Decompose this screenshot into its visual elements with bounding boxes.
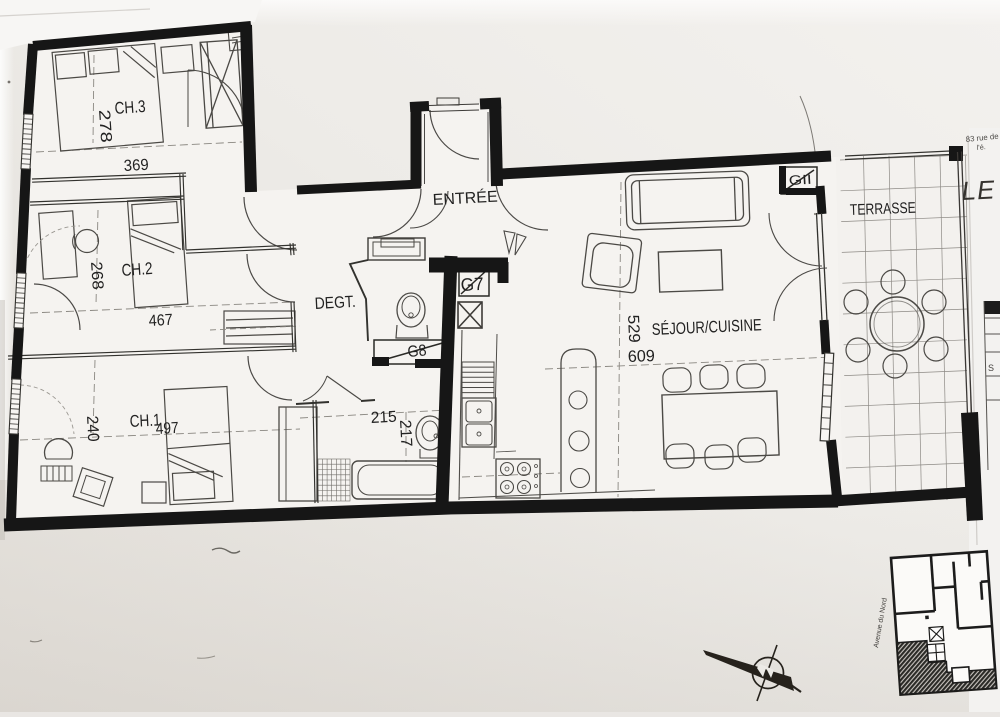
svg-text:l'é.: l'é. <box>976 142 986 152</box>
svg-text:LE P: LE P <box>961 173 1000 206</box>
svg-text:215: 215 <box>370 409 397 427</box>
svg-text:CH.2: CH.2 <box>121 259 153 280</box>
svg-text:609: 609 <box>628 347 656 366</box>
svg-text:G7: G7 <box>460 274 484 295</box>
svg-text:240: 240 <box>83 415 101 442</box>
svg-text:S: S <box>988 363 994 373</box>
svg-text:497: 497 <box>155 420 179 438</box>
svg-text:268: 268 <box>87 261 106 290</box>
svg-text:217: 217 <box>396 419 414 447</box>
svg-text:G8: G8 <box>407 342 427 361</box>
svg-text:467: 467 <box>148 312 173 330</box>
svg-text:GII: GII <box>788 172 812 188</box>
svg-text:TERRASSE: TERRASSE <box>850 200 917 219</box>
svg-text:278: 278 <box>95 109 114 143</box>
svg-text:529: 529 <box>624 314 642 343</box>
svg-text:369: 369 <box>123 157 149 175</box>
svg-text:DEGT.: DEGT. <box>314 293 356 313</box>
svg-text:CH.3: CH.3 <box>114 97 146 118</box>
